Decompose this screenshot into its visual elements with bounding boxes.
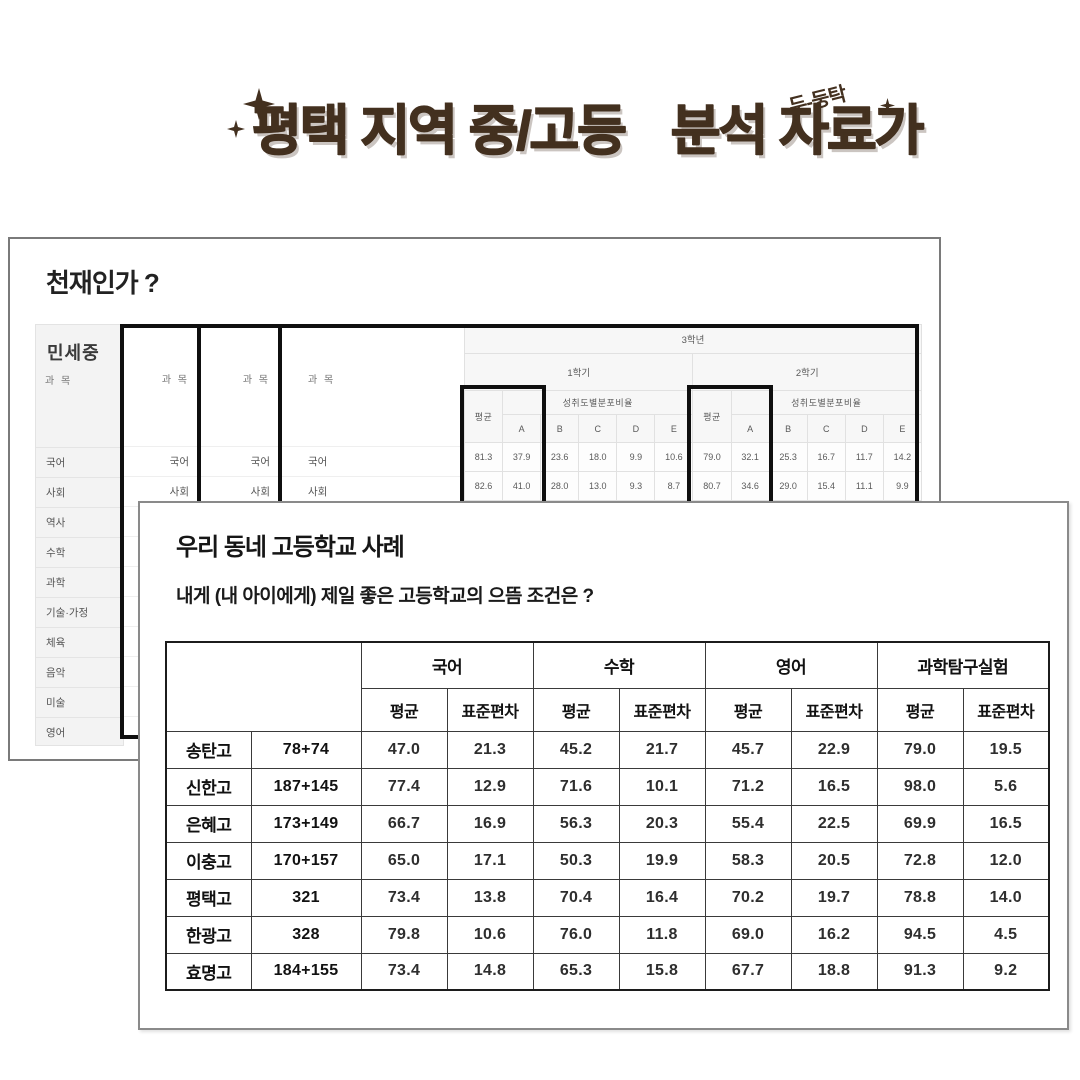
level-header: B: [541, 415, 579, 443]
grade-value-cell: 16.7: [807, 443, 845, 472]
stat-value: 16.5: [791, 768, 877, 805]
student-count: 173+149: [251, 805, 361, 842]
genius-card-heading: 천재인가 ?: [46, 263, 159, 300]
corner-cell: [166, 642, 361, 731]
subject-group-header: 영어: [705, 642, 877, 688]
stat-value: 91.3: [877, 953, 963, 990]
stat-value: 65.0: [361, 842, 447, 879]
page-title-left: 평택 지역 중/고등: [252, 101, 625, 161]
stat-value: 76.0: [533, 916, 619, 953]
metric-header: 표준편차: [619, 688, 705, 731]
stat-value: 16.9: [447, 805, 533, 842]
stat-value: 58.3: [705, 842, 791, 879]
stat-value: 71.6: [533, 768, 619, 805]
student-count: 170+157: [251, 842, 361, 879]
stat-value: 12.9: [447, 768, 533, 805]
stat-value: 16.2: [791, 916, 877, 953]
subject-row: 기술·가정: [36, 597, 123, 627]
level-header: A: [731, 415, 769, 443]
metric-header: 평균: [877, 688, 963, 731]
level-header: D: [845, 415, 883, 443]
stat-value: 19.9: [619, 842, 705, 879]
grade-header: 3학년: [465, 325, 922, 354]
stat-value: 18.8: [791, 953, 877, 990]
grade-value-cell: 80.7: [693, 472, 731, 501]
grade-value-cell: 28.0: [541, 472, 579, 501]
school-row: 이충고170+15765.017.150.319.958.320.572.812…: [166, 842, 1049, 879]
school-name: 한광고: [166, 916, 251, 953]
grade-data-row: 82.641.028.013.09.38.780.734.629.015.411…: [465, 472, 922, 501]
avg-header: 평균: [465, 391, 503, 443]
metric-header: 표준편차: [963, 688, 1049, 731]
stat-value: 21.3: [447, 731, 533, 768]
stat-value: 73.4: [361, 953, 447, 990]
stat-value: 72.8: [877, 842, 963, 879]
grade-value-cell: 15.4: [807, 472, 845, 501]
dist-header: 성취도별분포비율: [731, 391, 921, 415]
stat-value: 14.0: [963, 879, 1049, 916]
stat-value: 11.8: [619, 916, 705, 953]
stat-value: 50.3: [533, 842, 619, 879]
school-name: 평택고: [166, 879, 251, 916]
grade-value-cell: 18.0: [579, 443, 617, 472]
stat-value: 19.7: [791, 879, 877, 916]
metric-header: 평균: [533, 688, 619, 731]
subject-column-label: 과 목: [45, 372, 72, 387]
stat-value: 20.5: [791, 842, 877, 879]
stat-value: 14.8: [447, 953, 533, 990]
stat-value: 47.0: [361, 731, 447, 768]
sparkle-icon: [227, 120, 245, 138]
stat-value: 20.3: [619, 805, 705, 842]
subject-row: 미술: [36, 687, 123, 717]
school-row: 송탄고78+7447.021.345.221.745.722.979.019.5: [166, 731, 1049, 768]
school-row: 한광고32879.810.676.011.869.016.294.54.5: [166, 916, 1049, 953]
subject-row: 음악: [36, 657, 123, 687]
stat-value: 70.2: [705, 879, 791, 916]
grade-value-cell: 8.7: [655, 472, 693, 501]
metric-header: 평균: [361, 688, 447, 731]
grade-value-cell: 34.6: [731, 472, 769, 501]
semester2-header: 2학기: [693, 354, 922, 391]
stat-value: 19.5: [963, 731, 1049, 768]
subject-row: 사회: [36, 477, 123, 507]
stat-value: 79.8: [361, 916, 447, 953]
dist-header: 성취도별분포비율: [503, 391, 693, 415]
subject-row: 국어: [124, 446, 199, 476]
level-header: B: [769, 415, 807, 443]
stat-value: 4.5: [963, 916, 1049, 953]
grade-value-cell: 9.9: [617, 443, 655, 472]
stat-value: 55.4: [705, 805, 791, 842]
grade-value-cell: 10.6: [655, 443, 693, 472]
stat-value: 16.5: [963, 805, 1049, 842]
school-row: 신한고187+14577.412.971.610.171.216.598.05.…: [166, 768, 1049, 805]
stat-value: 45.7: [705, 731, 791, 768]
case-card-heading: 우리 동네 고등학교 사례: [176, 527, 404, 562]
avg-header: 평균: [693, 391, 731, 443]
grade-value-cell: 23.6: [541, 443, 579, 472]
grade-value-cell: 29.0: [769, 472, 807, 501]
subject-list: 국어사회역사수학과학기술·가정체육음악미술영어: [36, 447, 123, 747]
grade-value-cell: 14.2: [883, 443, 921, 472]
subject-row: 국어: [36, 447, 123, 477]
grade-value-cell: 11.7: [845, 443, 883, 472]
subject-row: 과학: [36, 567, 123, 597]
stat-value: 10.6: [447, 916, 533, 953]
school-row: 효명고184+15573.414.865.315.867.718.891.39.…: [166, 953, 1049, 990]
subject-group-header: 국어: [361, 642, 533, 688]
student-count: 328: [251, 916, 361, 953]
level-header: D: [617, 415, 655, 443]
grade-value-cell: 37.9: [503, 443, 541, 472]
subject-column-label: 과 목: [308, 371, 335, 386]
stat-value: 94.5: [877, 916, 963, 953]
student-count: 78+74: [251, 731, 361, 768]
stat-value: 17.1: [447, 842, 533, 879]
school-row: 은혜고173+14966.716.956.320.355.422.569.916…: [166, 805, 1049, 842]
school-stats-table: 국어 수학 영어 과학탐구실험 평균 표준편차 평균 표준편차 평균 표준편차 …: [165, 641, 1050, 991]
student-count: 187+145: [251, 768, 361, 805]
level-header: C: [579, 415, 617, 443]
subject-group-header: 과학탐구실험: [877, 642, 1049, 688]
grade-value-cell: 32.1: [731, 443, 769, 472]
stat-value: 12.0: [963, 842, 1049, 879]
page: 평택 지역 중/고등분석 자료가 두-둥탁 천재인가 ? 민세중 과 목 국어사…: [0, 0, 1080, 1080]
stat-value: 10.1: [619, 768, 705, 805]
stat-value: 13.8: [447, 879, 533, 916]
case-card: 우리 동네 고등학교 사례 내게 (내 아이에게) 제일 좋은 고등학교의 으뜸…: [138, 501, 1069, 1030]
school-name: 신한고: [166, 768, 251, 805]
subject-group-header: 수학: [533, 642, 705, 688]
stat-value: 21.7: [619, 731, 705, 768]
school-name: 효명고: [166, 953, 251, 990]
school-name: 이충고: [166, 842, 251, 879]
stat-value: 66.7: [361, 805, 447, 842]
stat-value: 69.0: [705, 916, 791, 953]
subject-row: 수학: [36, 537, 123, 567]
subject-column-label: 과 목: [243, 371, 270, 386]
stat-value: 67.7: [705, 953, 791, 990]
stat-value: 22.9: [791, 731, 877, 768]
stat-value: 70.4: [533, 879, 619, 916]
subject-column-main: 민세중 과 목 국어사회역사수학과학기술·가정체육음악미술영어: [35, 324, 124, 746]
grade-value-cell: 79.0: [693, 443, 731, 472]
grade-value-cell: 41.0: [503, 472, 541, 501]
school-row: 평택고32173.413.870.416.470.219.778.814.0: [166, 879, 1049, 916]
semester1-header: 1학기: [465, 354, 693, 391]
stat-value: 79.0: [877, 731, 963, 768]
stat-value: 5.6: [963, 768, 1049, 805]
stat-value: 56.3: [533, 805, 619, 842]
grade-value-cell: 25.3: [769, 443, 807, 472]
subject-column-label: 과 목: [162, 371, 189, 386]
stat-value: 15.8: [619, 953, 705, 990]
grade-value-cell: 13.0: [579, 472, 617, 501]
stat-value: 9.2: [963, 953, 1049, 990]
stat-value: 65.3: [533, 953, 619, 990]
stat-value: 16.4: [619, 879, 705, 916]
metric-header: 평균: [705, 688, 791, 731]
level-header: E: [883, 415, 921, 443]
subject-row: 영어: [36, 717, 123, 747]
subject-row: 국어: [199, 446, 280, 476]
stat-value: 22.5: [791, 805, 877, 842]
student-count: 321: [251, 879, 361, 916]
grade-value-cell: 9.9: [883, 472, 921, 501]
stat-value: 73.4: [361, 879, 447, 916]
level-header: C: [807, 415, 845, 443]
school-name: 은혜고: [166, 805, 251, 842]
stat-value: 69.9: [877, 805, 963, 842]
level-header: E: [655, 415, 693, 443]
grade-value-cell: 82.6: [465, 472, 503, 501]
school-name: 송탄고: [166, 731, 251, 768]
stat-value: 45.2: [533, 731, 619, 768]
metric-header: 표준편차: [447, 688, 533, 731]
stat-value: 98.0: [877, 768, 963, 805]
student-count: 184+155: [251, 953, 361, 990]
student-name: 민세중: [47, 339, 100, 365]
grade-report-table: 3학년 1학기 2학기 평균 성취도별분포비율 평균 성취도별분포비율 A B …: [464, 324, 922, 530]
grade-data-row: 81.337.923.618.09.910.679.032.125.316.71…: [465, 443, 922, 472]
subject-row: 체육: [36, 627, 123, 657]
stat-value: 71.2: [705, 768, 791, 805]
metric-header: 표준편차: [791, 688, 877, 731]
grade-value-cell: 81.3: [465, 443, 503, 472]
subject-row: 국어: [280, 446, 464, 476]
stat-value: 77.4: [361, 768, 447, 805]
subject-row: 역사: [36, 507, 123, 537]
case-card-question: 내게 (내 아이에게) 제일 좋은 고등학교의 으뜸 조건은 ?: [176, 581, 594, 608]
level-header: A: [503, 415, 541, 443]
stat-value: 78.8: [877, 879, 963, 916]
grade-value-cell: 9.3: [617, 472, 655, 501]
grade-value-cell: 11.1: [845, 472, 883, 501]
